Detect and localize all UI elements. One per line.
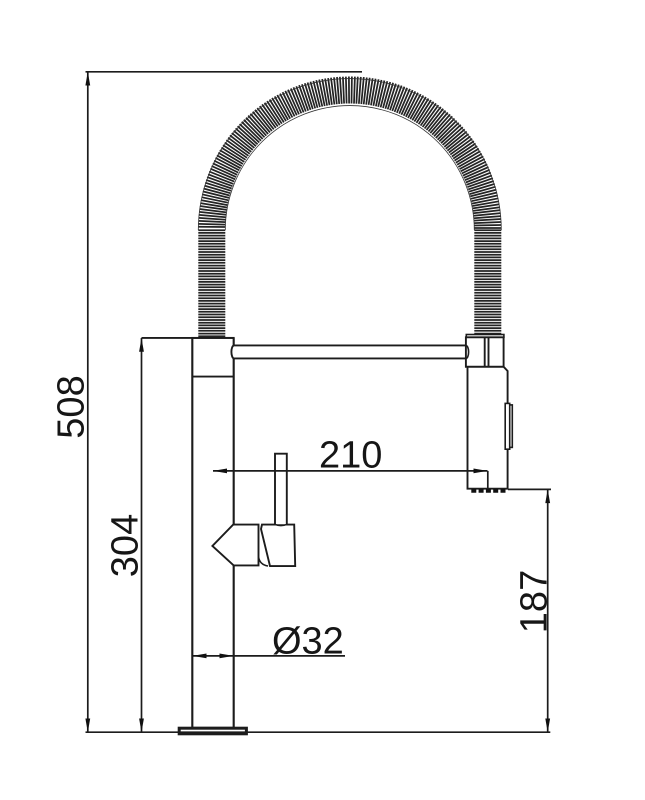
- svg-text:508: 508: [51, 375, 93, 438]
- svg-text:210: 210: [319, 434, 382, 476]
- svg-text:Ø32: Ø32: [272, 621, 344, 663]
- svg-text:187: 187: [513, 570, 555, 633]
- svg-text:304: 304: [104, 514, 146, 577]
